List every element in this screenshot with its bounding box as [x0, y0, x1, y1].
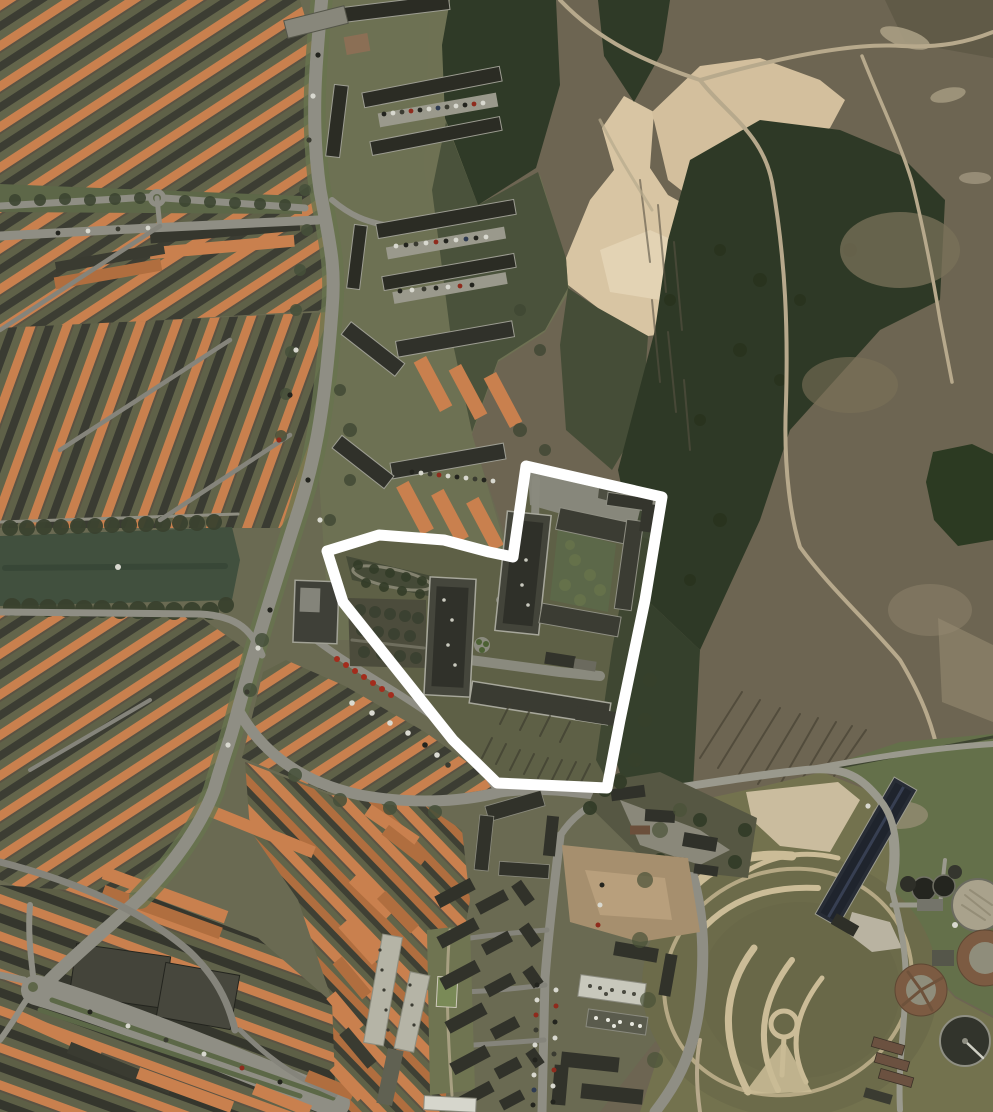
aerial-photo — [0, 0, 993, 1112]
heath-light-patch — [802, 357, 898, 413]
office-roof-detail — [300, 588, 321, 613]
canal-boat — [115, 564, 121, 570]
housing-block — [499, 861, 550, 878]
roundabout-island — [28, 982, 38, 992]
street — [157, 198, 160, 228]
sand-fleck — [959, 172, 991, 184]
digester-tank — [933, 875, 955, 897]
farm-building — [645, 809, 676, 823]
heath-light-patch — [888, 584, 972, 636]
farm-building — [630, 826, 650, 835]
district-west — [0, 312, 330, 528]
street — [0, 975, 24, 980]
heath-light-patch — [840, 212, 960, 288]
plant-building — [917, 899, 943, 911]
plant-building — [932, 950, 954, 966]
site-building-west-core — [431, 586, 468, 688]
aerial-photo-canvas — [0, 0, 993, 1112]
white-building — [424, 1096, 477, 1112]
storage-tank — [952, 879, 993, 931]
digester-tank — [948, 865, 962, 879]
district-northwest — [0, 0, 332, 330]
clarifier-hub — [962, 1038, 968, 1044]
digester-tank — [912, 877, 936, 901]
digester-tank — [900, 876, 916, 892]
